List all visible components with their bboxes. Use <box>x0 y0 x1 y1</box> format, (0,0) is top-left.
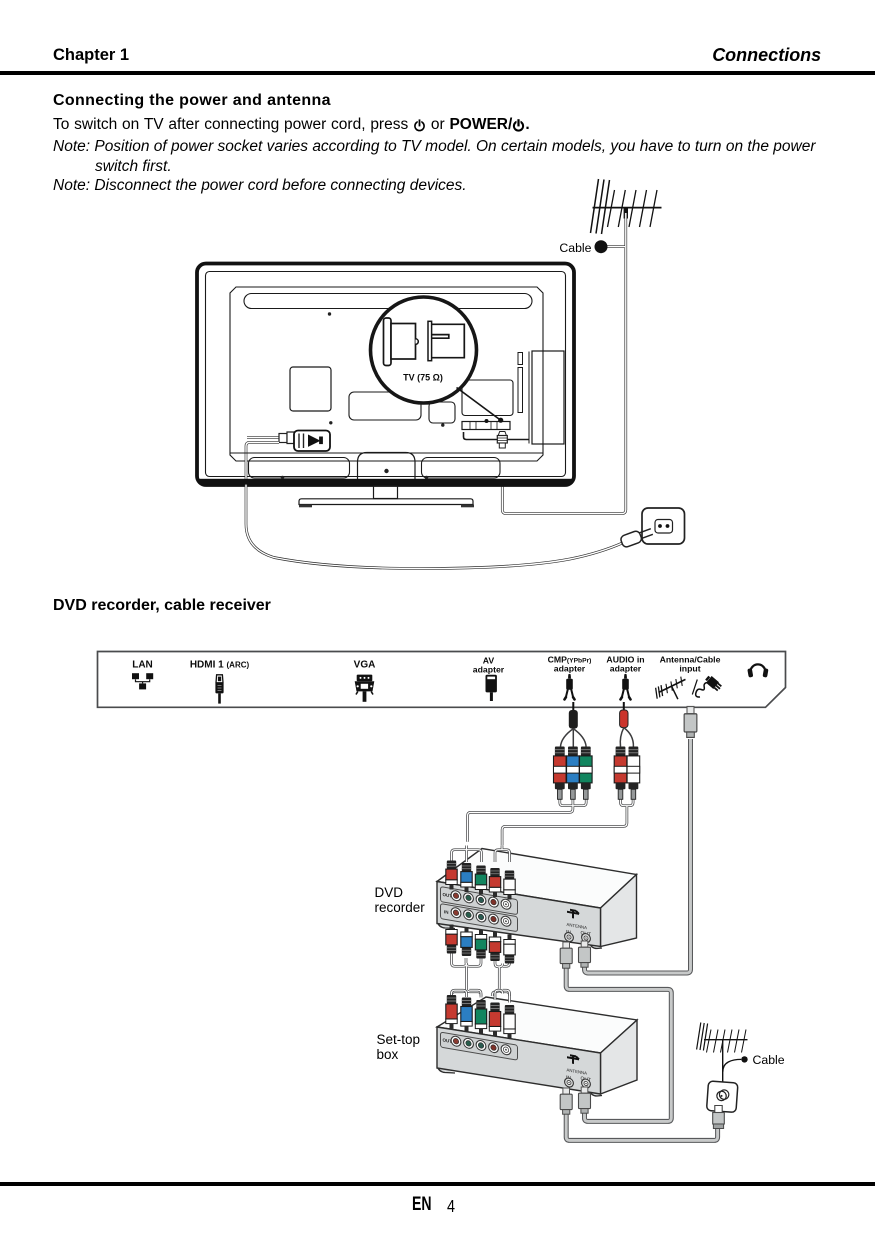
svg-text:LAN: LAN <box>132 659 153 670</box>
svg-text:Cable: Cable <box>559 241 591 255</box>
svg-text:VGA: VGA <box>354 659 376 670</box>
svg-text:adapter: adapter <box>610 664 642 674</box>
svg-text:adapter: adapter <box>554 664 586 674</box>
svg-text:IN: IN <box>444 909 448 915</box>
svg-text:TV (75 Ω): TV (75 Ω) <box>403 373 443 383</box>
svg-text:Cable: Cable <box>753 1053 785 1067</box>
svg-text:adapter: adapter <box>473 665 505 675</box>
svg-text:HDMI 1 (ARC): HDMI 1 (ARC) <box>190 659 250 670</box>
svg-text:input: input <box>679 664 700 674</box>
